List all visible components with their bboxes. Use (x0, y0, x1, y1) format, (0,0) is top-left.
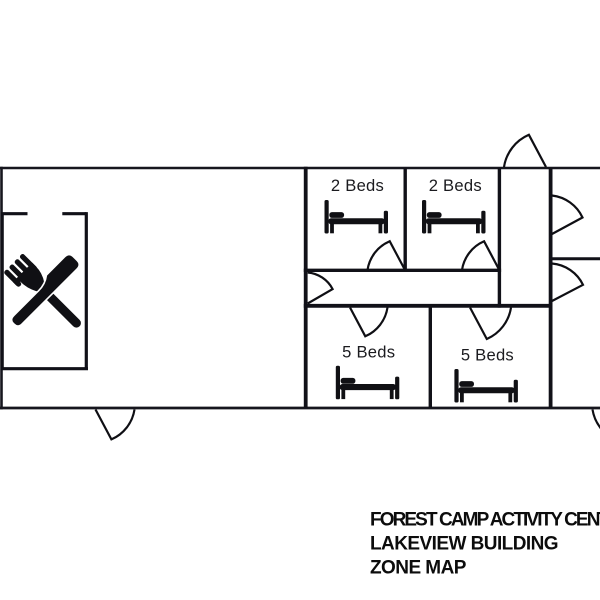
svg-text:5 Beds: 5 Beds (461, 345, 514, 364)
svg-text:5 Beds: 5 Beds (342, 342, 395, 361)
svg-text:LAKEVIEW BUILDING: LAKEVIEW BUILDING (370, 534, 558, 555)
svg-text:2 Beds: 2 Beds (429, 176, 482, 195)
svg-text:FOREST CAMP ACTIVITY CENTER: FOREST CAMP ACTIVITY CENTER (370, 510, 600, 531)
svg-text:ZONE MAP: ZONE MAP (370, 558, 467, 579)
svg-text:2 Beds: 2 Beds (331, 176, 384, 195)
